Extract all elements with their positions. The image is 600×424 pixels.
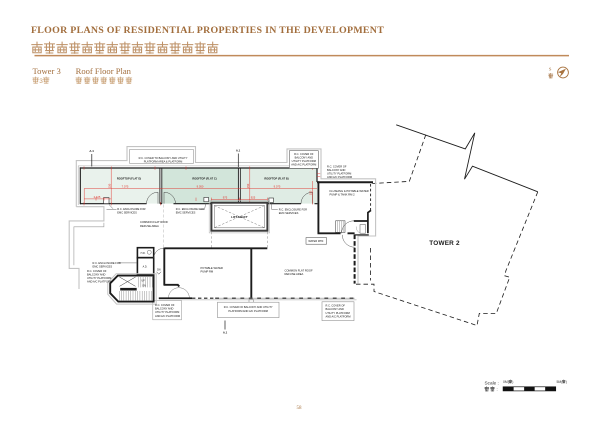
svg-text:UTILITY PLATFORM: UTILITY PLATFORM [155,310,179,314]
svg-text:Roof Floor Plan: Roof Floor Plan [76,66,132,76]
svg-text:PUMP RM: PUMP RM [201,270,214,274]
svg-text:R.C. COVER TO BALCONY AND UTIL: R.C. COVER TO BALCONY AND UTILITY [139,156,188,160]
svg-text:BALCONY AND: BALCONY AND [326,307,345,311]
svg-text:EMC SERVICES: EMC SERVICES [279,211,299,215]
svg-text:PLATFORM AND A/C PLATFORM: PLATFORM AND A/C PLATFORM [228,309,268,313]
svg-text:AND A/C PLATFORM: AND A/C PLATFORM [87,280,112,284]
svg-text::: : [497,387,498,392]
svg-text:): ) [512,380,513,384]
svg-text:A.1: A.1 [223,331,228,335]
svg-text:Tower 3: Tower 3 [33,66,61,76]
svg-text:3: 3 [39,78,43,85]
svg-text:POTABLE WATER: POTABLE WATER [201,266,223,270]
svg-text:150: 150 [246,183,250,188]
svg-text:R.C. ENCLOSURE FOR: R.C. ENCLOSURE FOR [117,207,145,211]
svg-text:9.050: 9.050 [197,185,204,189]
svg-text:EMC SERVICES: EMC SERVICES [93,264,113,268]
svg-text:A.1: A.1 [236,149,241,153]
svg-text:R.C. COVER OF: R.C. COVER OF [155,303,175,307]
svg-text:R.C. COVER OF: R.C. COVER OF [327,164,347,168]
svg-text:BALCONY AND: BALCONY AND [87,272,106,276]
svg-text:150: 150 [107,183,111,188]
svg-text:UTILITY PLATFORM: UTILITY PLATFORM [87,276,111,280]
svg-text:BALCONY AND: BALCONY AND [155,307,174,311]
svg-text:150: 150 [309,190,313,195]
svg-text:WATER MTR.: WATER MTR. [308,240,324,243]
svg-text:58: 58 [297,406,303,411]
svg-text:R.C. ENCLOSURE FOR: R.C. ENCLOSURE FOR [279,207,307,211]
svg-text:): ) [566,380,567,384]
svg-text:REFUSE AREA: REFUSE AREA [140,224,159,228]
svg-text:R.C. ENCLOSURE FOR: R.C. ENCLOSURE FOR [176,207,204,211]
svg-text:A.D.: A.D. [143,266,148,269]
svg-text:0M(: 0M( [503,380,510,384]
svg-text:LIFT SHAFT: LIFT SHAFT [231,215,248,219]
svg-text:AND A/C PLATFORM: AND A/C PLATFORM [327,175,352,179]
svg-text:AND A/C PLATFORM: AND A/C PLATFORM [291,163,316,167]
svg-text:EMC SERVICES: EMC SERVICES [176,210,196,214]
svg-text:FLUSHING & POTABLE WATER: FLUSHING & POTABLE WATER [330,189,369,193]
svg-text:AND A/C PLATFORM: AND A/C PLATFORM [155,314,180,318]
svg-text:R.C. COVER OF: R.C. COVER OF [326,304,346,308]
svg-text:COMMON FLAT ROOF: COMMON FLAT ROOF [140,220,168,224]
svg-text:Scale :: Scale : [485,380,499,385]
svg-text:H.R.: H.R. [141,252,146,255]
svg-text:R.C. COVER OF: R.C. COVER OF [87,269,107,273]
svg-text:5M(: 5M( [557,380,564,384]
svg-text:BALCONY AND: BALCONY AND [327,168,346,172]
svg-text:R.C. ENCLOSURE FOR: R.C. ENCLOSURE FOR [93,261,121,265]
svg-text:COMMON FLAT ROOF: COMMON FLAT ROOF [285,268,313,272]
svg-text:EMC SERVICES: EMC SERVICES [117,210,137,214]
svg-text:A.4: A.4 [89,149,94,153]
svg-text:UTILITY PLATFORM: UTILITY PLATFORM [327,171,351,175]
svg-text:PLATFORM AREA & PLATFORM: PLATFORM AREA & PLATFORM [144,159,183,163]
svg-text:UTILITY PLATFORM: UTILITY PLATFORM [292,159,316,163]
svg-text:975: 975 [223,195,228,199]
svg-text:ROOFTOP (FLAT D): ROOFTOP (FLAT D) [117,176,141,180]
svg-text:DN: DN [157,269,161,272]
svg-text:ROOFTOP (FLAT B): ROOFTOP (FLAT B) [264,176,288,180]
svg-text:UP: UP [142,281,146,283]
svg-text:R.C. COVER OF BALCONY AND UTIL: R.C. COVER OF BALCONY AND UTILITY [224,305,273,309]
svg-text:9.075: 9.075 [274,185,281,189]
svg-text:PUMP & TANK RM 2: PUMP & TANK RM 2 [330,193,356,197]
svg-text:REFUSE AREA: REFUSE AREA [285,272,304,276]
svg-text:DN: DN [143,285,147,287]
svg-text:2.425: 2.425 [94,195,101,199]
svg-text:AND A/C PLATFORM: AND A/C PLATFORM [326,314,351,318]
svg-text:ROOFTOP (FLAT C): ROOFTOP (FLAT C) [192,176,216,180]
svg-text:TOWER 2: TOWER 2 [429,240,460,247]
svg-text:UTILITY PLATFORM: UTILITY PLATFORM [326,311,350,315]
svg-text:7.075: 7.075 [122,185,129,189]
svg-text:BALCONY AND: BALCONY AND [295,156,314,160]
svg-text:925: 925 [251,195,256,199]
svg-text:R.C. COVER OF: R.C. COVER OF [294,152,314,156]
svg-text:S: S [549,66,552,71]
svg-text:FLOOR PLANS OF RESIDENTIAL PRO: FLOOR PLANS OF RESIDENTIAL PROPERTIES IN… [31,25,384,36]
